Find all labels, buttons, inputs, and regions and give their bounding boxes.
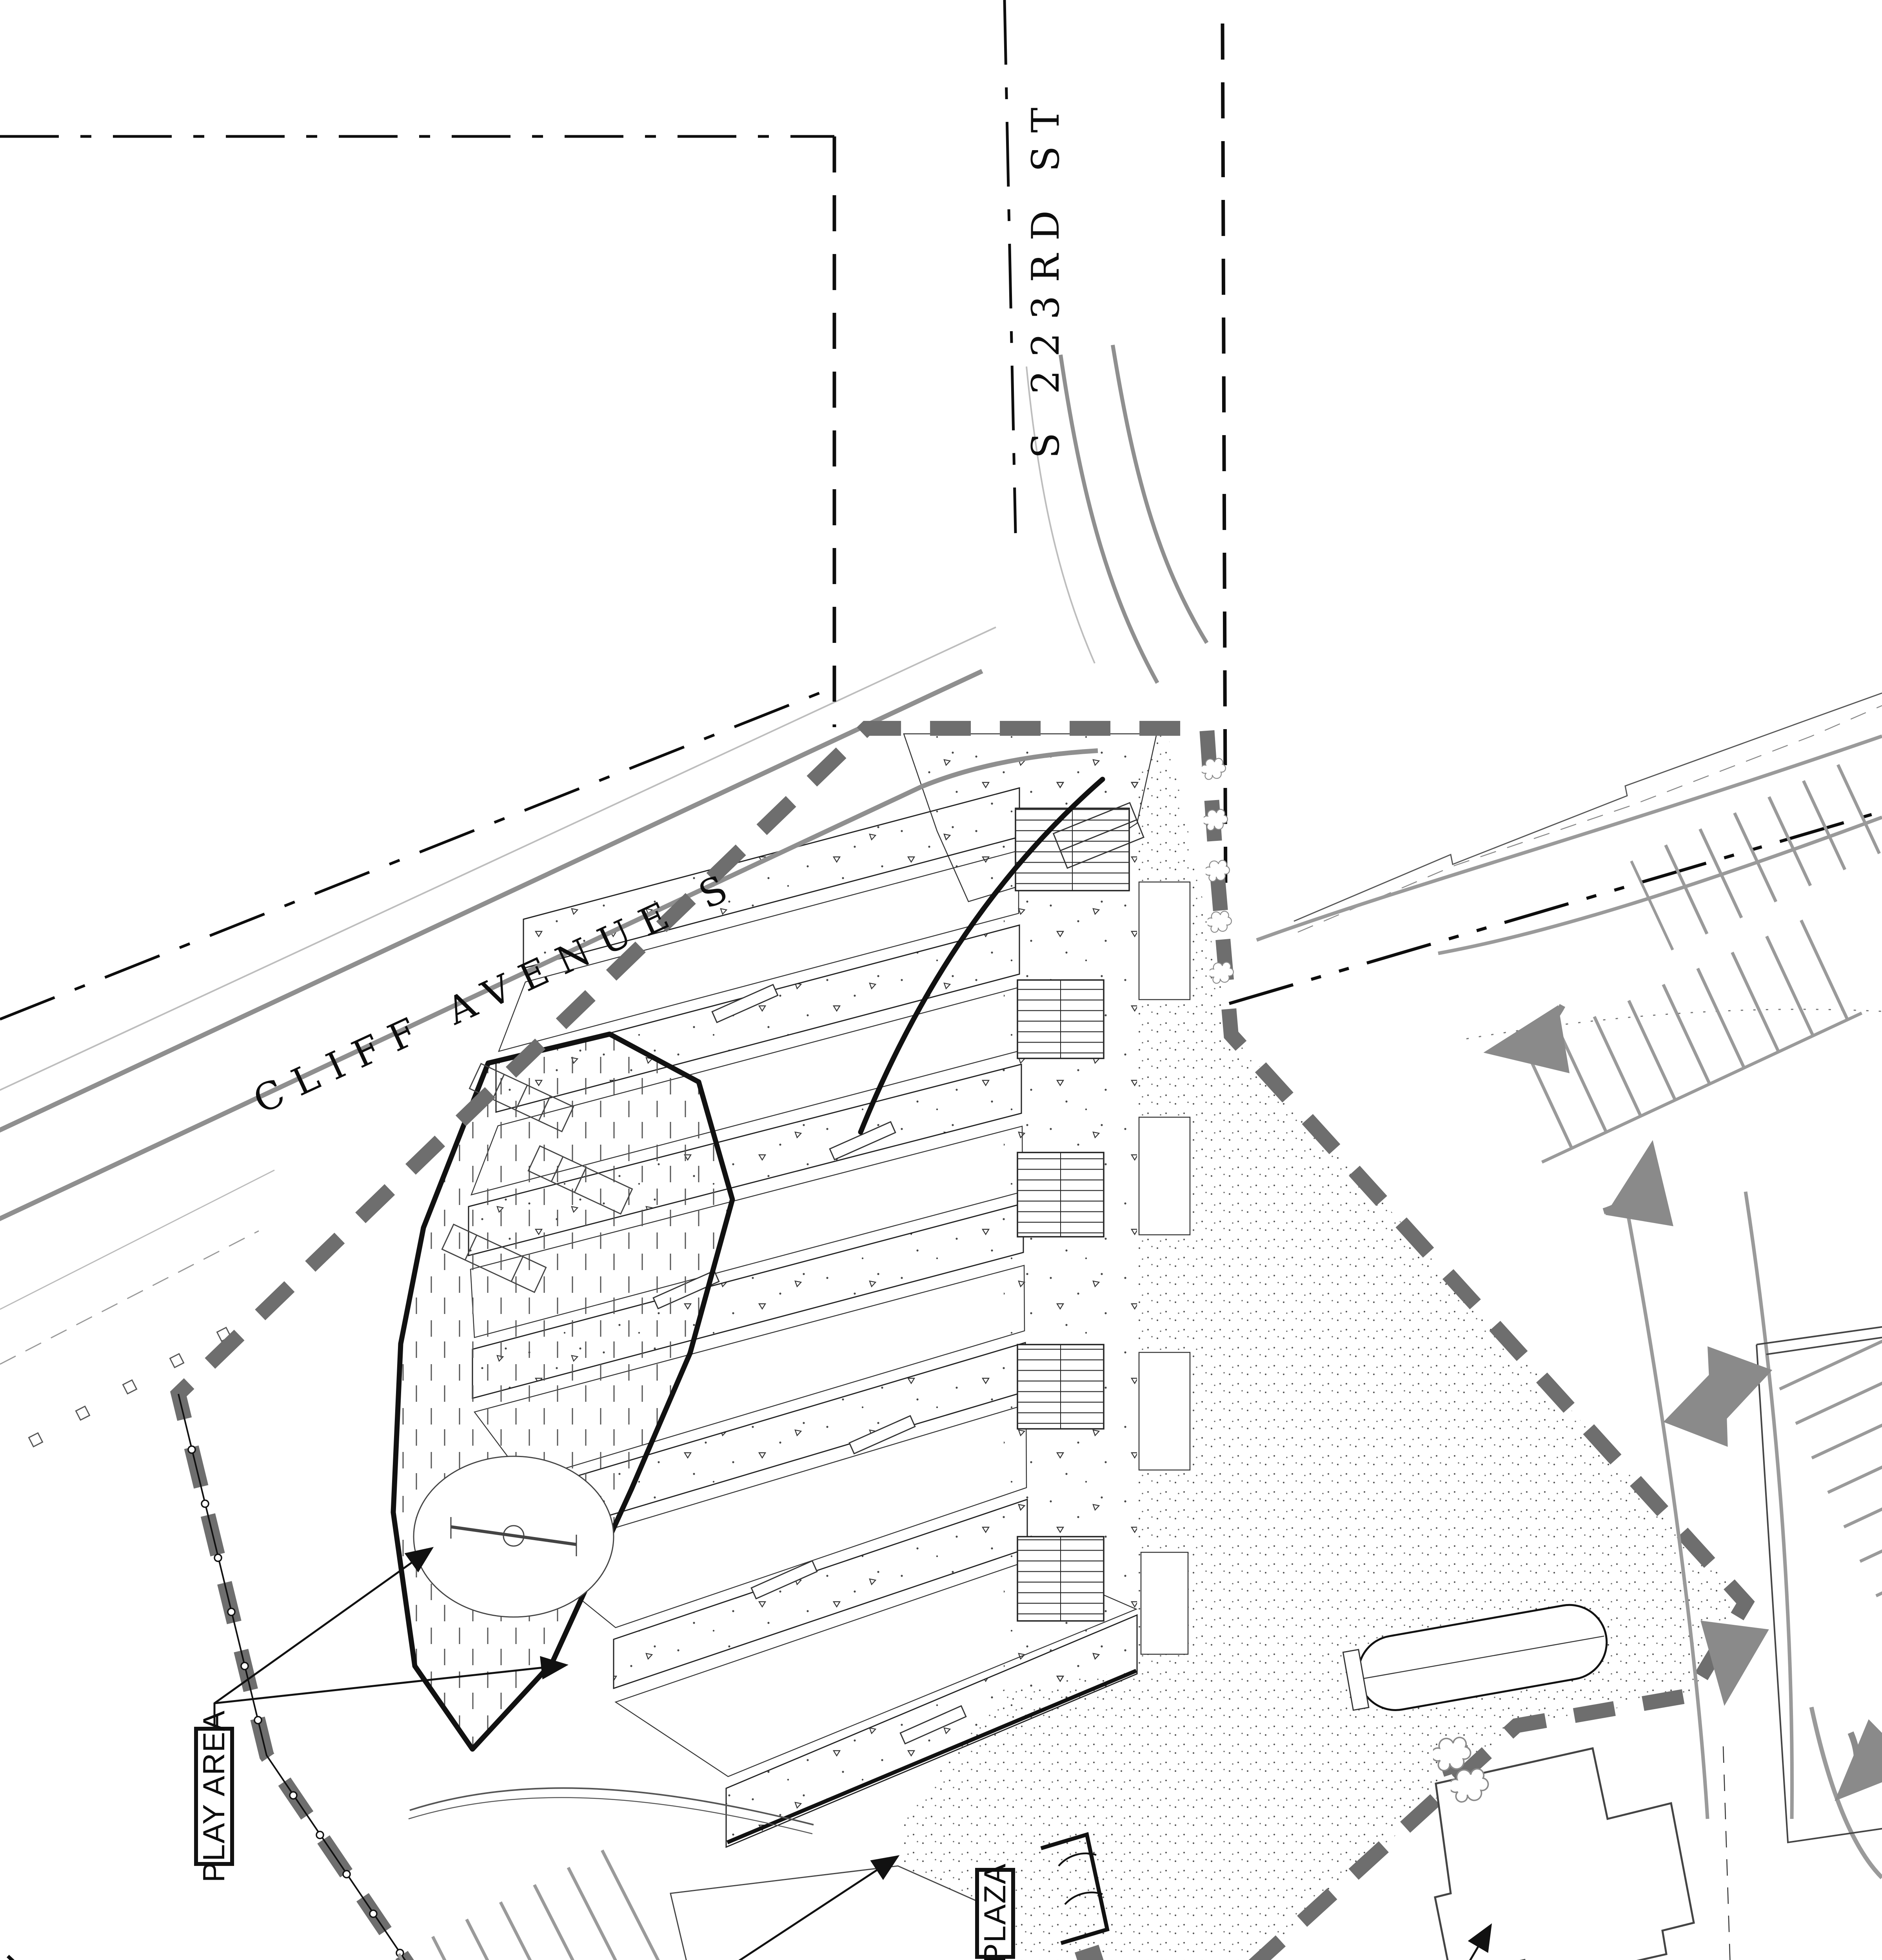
play-area-label: PLAY AREA	[196, 1710, 232, 1882]
site-plan-sheet: L4 L3 L2 CLIFF AVENUE S S 223RD ST PLAY …	[0, 0, 1882, 1960]
plaza-label-text: PLAZA	[977, 1863, 1012, 1960]
play-area-label-text: PLAY AREA	[196, 1710, 231, 1882]
site-plan-canvas: L4 L3 L2 CLIFF AVENUE S S 223RD ST PLAY …	[0, 0, 1882, 1960]
s223rd-street-label: S 223RD ST	[1024, 94, 1068, 458]
plaza-label: PLAZA	[977, 1863, 1013, 1960]
fence-posts	[29, 1328, 231, 1447]
